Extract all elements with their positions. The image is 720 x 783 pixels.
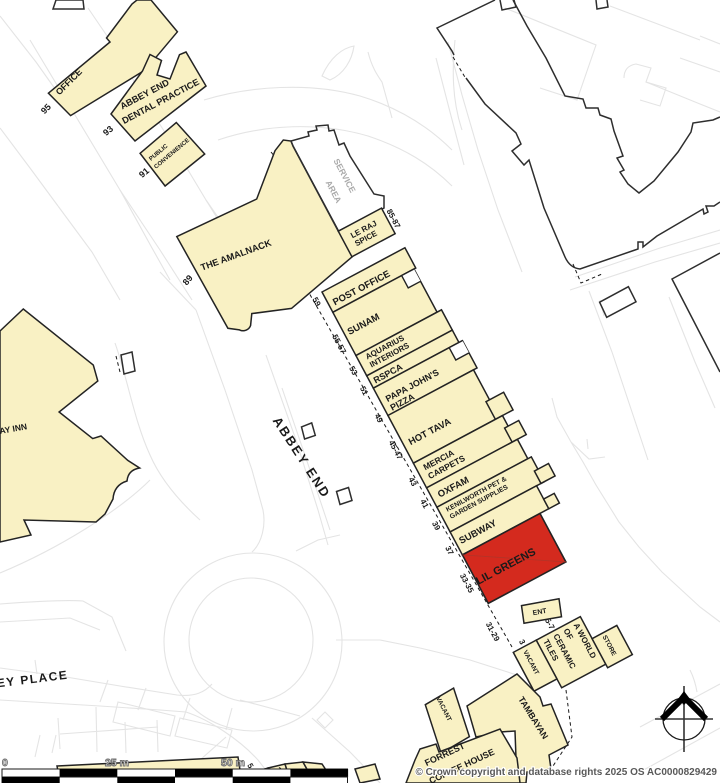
- svg-text:© Crown copyright and database: © Crown copyright and database rights 20…: [415, 767, 717, 778]
- svg-text:0: 0: [2, 757, 8, 769]
- svg-text:50 m: 50 m: [221, 757, 245, 769]
- svg-text:25 m: 25 m: [105, 757, 129, 769]
